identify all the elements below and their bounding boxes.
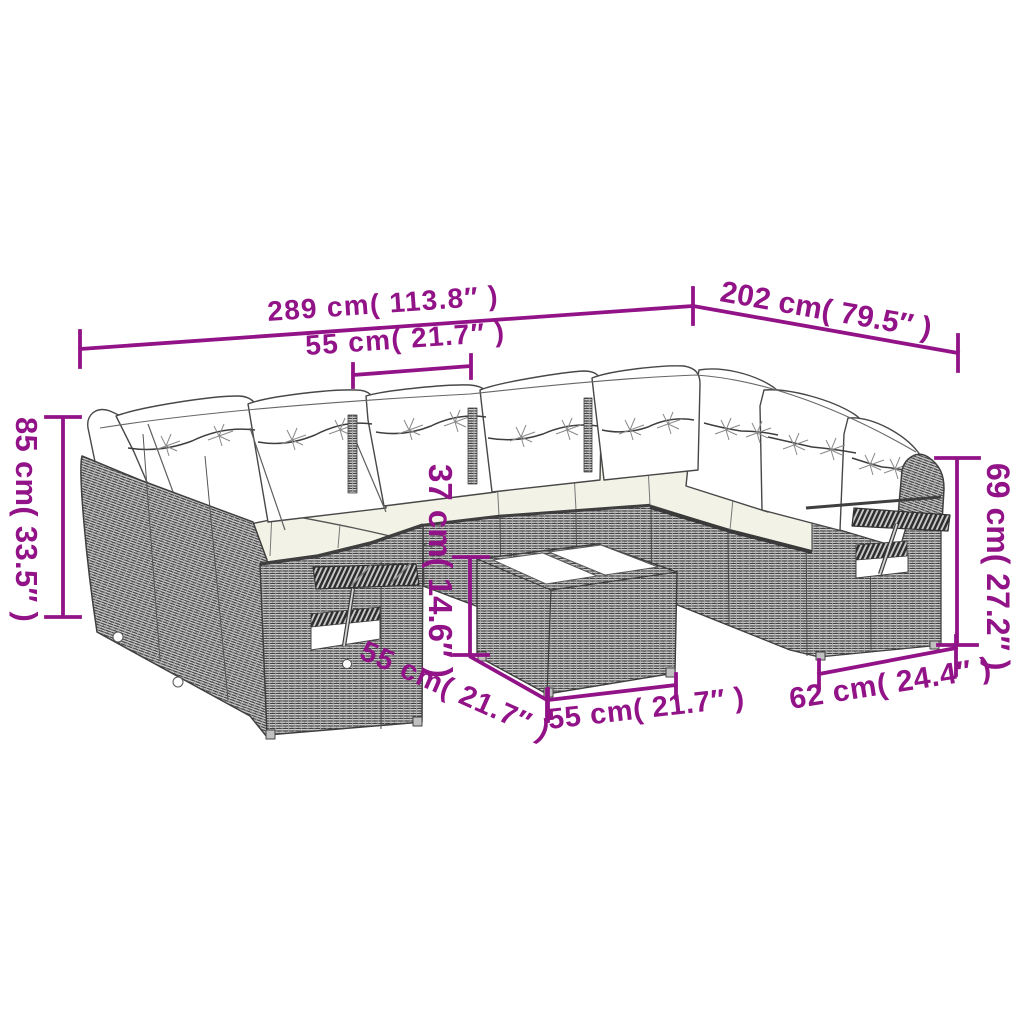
svg-text:37 cm( 14.6″ ): 37 cm( 14.6″ ) — [422, 464, 459, 678]
svg-text:85 cm( 33.5″ ): 85 cm( 33.5″ ) — [9, 417, 44, 622]
svg-text:55 cm( 21.7″ ): 55 cm( 21.7″ ) — [304, 316, 506, 361]
svg-text:69 cm( 27.2″ ): 69 cm( 27.2″ ) — [980, 463, 1016, 670]
svg-text:202 cm( 79.5″ ): 202 cm( 79.5″ ) — [718, 275, 935, 345]
